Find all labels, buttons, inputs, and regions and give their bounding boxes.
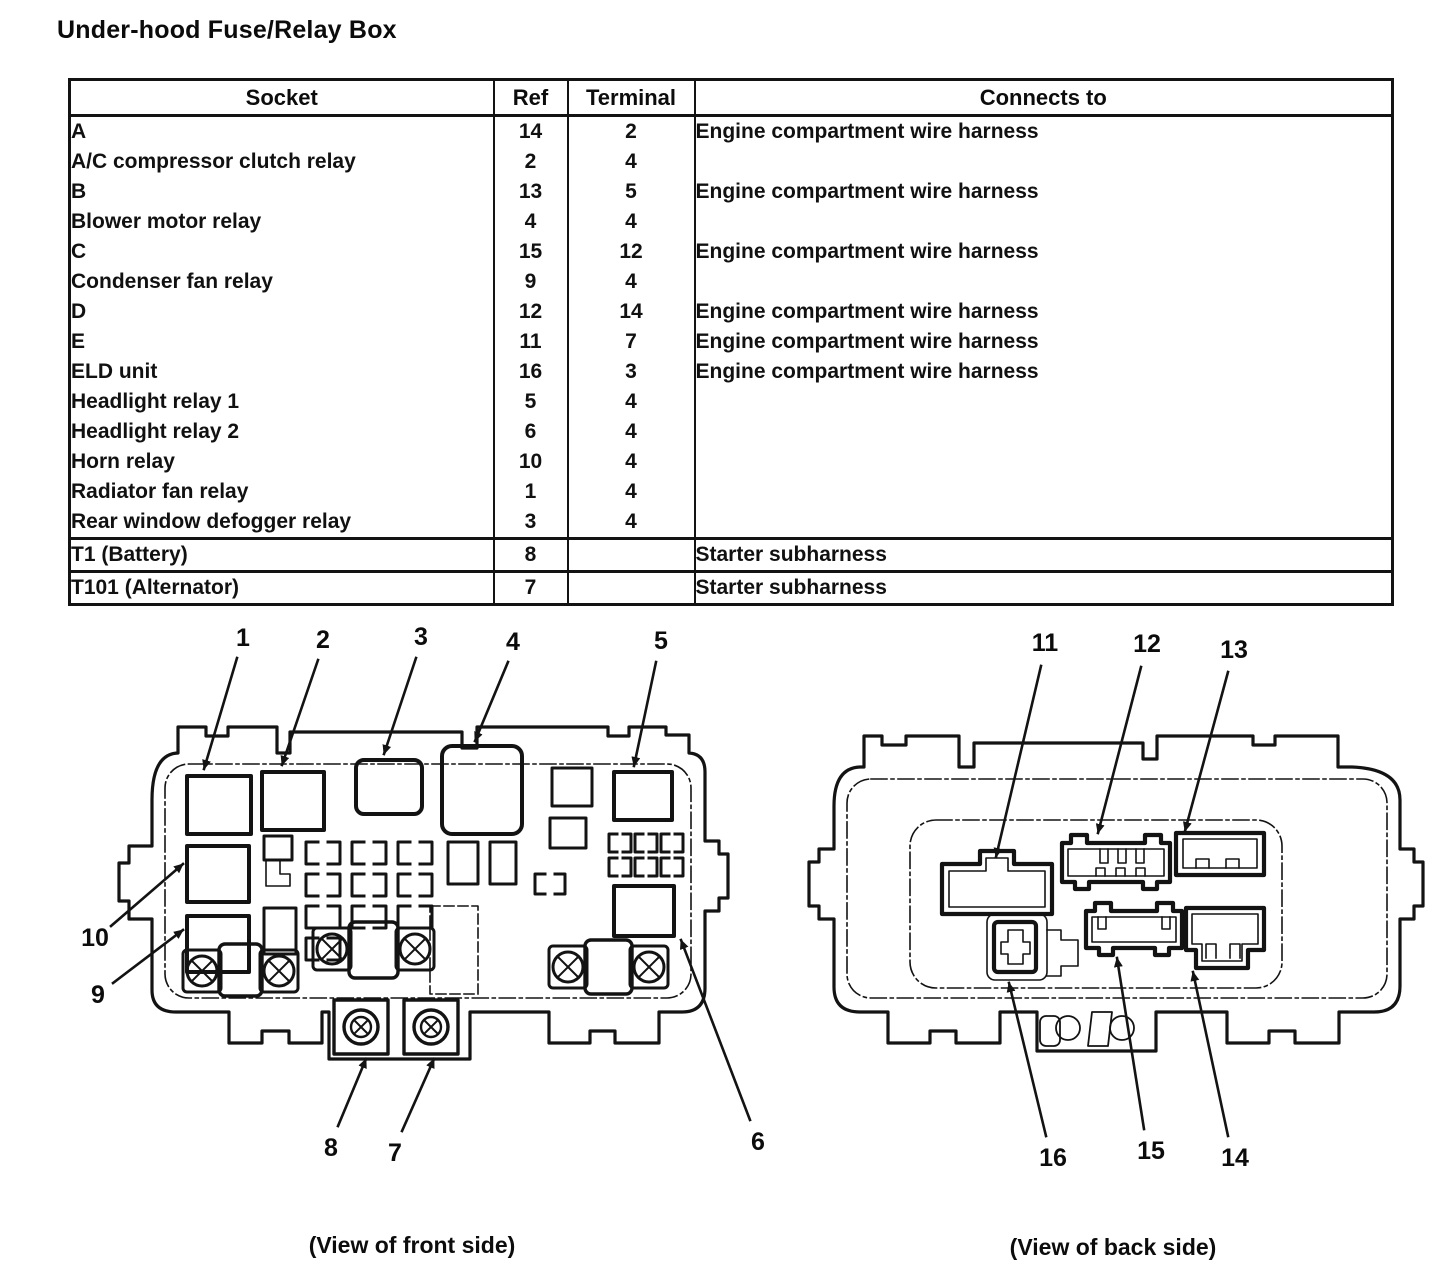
callout-arrow-8 bbox=[338, 1059, 366, 1126]
front-relay-socket-10 bbox=[187, 846, 249, 902]
callout-label-9: 9 bbox=[91, 981, 105, 1009]
callout-label-8: 8 bbox=[324, 1134, 338, 1162]
callout-label-16: 16 bbox=[1039, 1144, 1067, 1172]
callout-label-6: 6 bbox=[751, 1128, 765, 1156]
callout-label-15: 15 bbox=[1137, 1137, 1165, 1165]
front-mini-connector bbox=[264, 836, 292, 860]
back-view-diagram: 11 12 13 14 15 16 bbox=[809, 629, 1423, 1172]
callout-arrow-5 bbox=[634, 662, 656, 766]
bolt-terminal-8 bbox=[334, 1000, 388, 1054]
connector-15 bbox=[1086, 903, 1182, 955]
callout-arrow-15 bbox=[1117, 958, 1144, 1129]
connector-16 bbox=[987, 914, 1078, 980]
callout-label-11: 11 bbox=[1032, 629, 1059, 657]
back-casing-outline bbox=[809, 736, 1423, 1051]
front-small-socket-a bbox=[552, 768, 592, 806]
callout-arrow-3 bbox=[384, 658, 416, 754]
front-socket-small-left bbox=[264, 908, 296, 954]
fuse-slot-cluster-right bbox=[609, 834, 683, 876]
callout-arrow-4 bbox=[475, 662, 508, 741]
callout-arrow-11 bbox=[996, 666, 1041, 857]
connector-13 bbox=[1176, 833, 1264, 875]
front-relay-socket-6 bbox=[614, 886, 674, 936]
front-mini-connector-tail bbox=[266, 862, 290, 886]
fuse-box-diagrams: 1 2 3 4 5 6 7 8 9 10 bbox=[0, 0, 1456, 1272]
callout-arrow-7 bbox=[402, 1059, 434, 1131]
callout-arrow-6 bbox=[681, 940, 750, 1120]
bolt-terminal-7 bbox=[404, 1000, 458, 1054]
callout-label-3: 3 bbox=[414, 623, 428, 651]
callout-arrow-12 bbox=[1098, 667, 1141, 833]
front-relay-socket-4 bbox=[442, 746, 522, 834]
callout-arrow-13 bbox=[1185, 672, 1228, 831]
front-view-diagram: 1 2 3 4 5 6 7 8 9 10 bbox=[81, 623, 765, 1167]
connector-11 bbox=[942, 851, 1052, 914]
callout-label-4: 4 bbox=[506, 628, 520, 656]
callout-arrow-10 bbox=[111, 864, 183, 926]
callout-arrow-16 bbox=[1009, 983, 1046, 1136]
fusible-link-right bbox=[549, 940, 668, 994]
front-small-socket-b bbox=[550, 818, 586, 848]
callout-arrow-1 bbox=[204, 658, 237, 769]
callout-label-10: 10 bbox=[81, 924, 109, 952]
callout-arrow-9 bbox=[113, 930, 183, 983]
front-view-caption: (View of front side) bbox=[309, 1232, 516, 1259]
front-fuse-medium-1 bbox=[448, 842, 478, 884]
callout-label-12: 12 bbox=[1133, 630, 1161, 658]
connector-14 bbox=[1186, 908, 1264, 968]
front-relay-socket-5 bbox=[614, 772, 672, 820]
front-relay-socket-2 bbox=[262, 772, 324, 830]
front-relay-socket-1 bbox=[187, 776, 251, 834]
callout-arrow-14 bbox=[1193, 972, 1228, 1136]
callout-label-7: 7 bbox=[388, 1139, 402, 1167]
callout-label-5: 5 bbox=[654, 627, 668, 655]
back-view-caption: (View of back side) bbox=[1010, 1234, 1217, 1261]
manual-page: { "page": { "title": "Under-hood Fuse/Re… bbox=[0, 0, 1456, 1272]
front-fuse-holder-outline bbox=[430, 906, 478, 994]
front-fuse-medium-2 bbox=[490, 842, 516, 884]
callout-arrow-2 bbox=[282, 660, 318, 765]
fusible-link-middle bbox=[313, 922, 434, 978]
callout-label-2: 2 bbox=[316, 626, 330, 654]
back-mount-tab-details bbox=[1040, 1012, 1134, 1046]
callout-label-13: 13 bbox=[1220, 636, 1248, 664]
connector-12 bbox=[1062, 835, 1170, 889]
callout-label-14: 14 bbox=[1221, 1144, 1249, 1172]
front-relay-socket-3 bbox=[356, 760, 422, 814]
callout-label-1: 1 bbox=[236, 624, 250, 652]
